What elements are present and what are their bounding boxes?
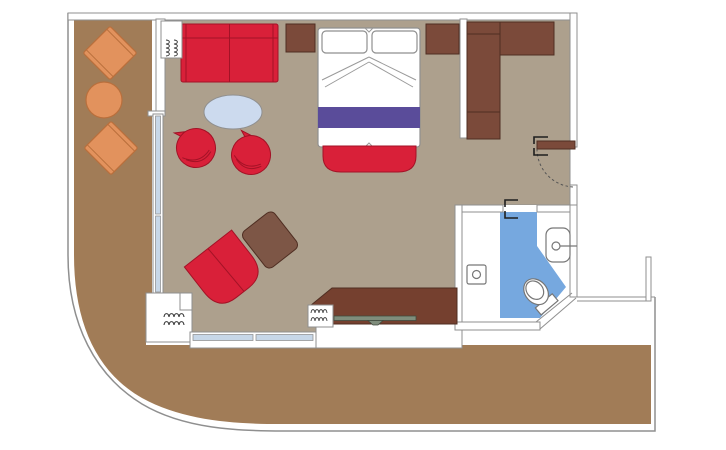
pillow-right [372,31,417,53]
pillow-left [322,31,367,53]
shower-drain-hole [473,271,481,279]
bottom-window-pane-1 [193,335,253,341]
double-bed [318,28,420,172]
bathroom-bottom-wall [455,322,540,330]
bathroom [455,200,577,330]
red-sofa [181,24,278,82]
right-wall-upper [570,13,577,147]
left-window-pane-1 [156,116,161,214]
left-window-pane-2 [156,216,161,292]
foot-of-bed-bench [323,146,416,172]
right-wall-below-door [570,185,577,207]
bathroom-right-wall [570,205,577,297]
floor-plan-page: { "plan": { "kind": "cruise-stateroom-fl… [0,0,726,450]
top-wall [68,13,577,20]
stateroom-floor-plan [0,0,726,450]
nightstand-left [286,24,315,52]
curtain-box-desk [308,305,333,327]
curtain-box-top-left [161,21,182,58]
entry-door-leaf [537,141,575,149]
oval-coffee-table [204,95,262,129]
alcove-wall-chunk [146,293,192,342]
tv [334,316,416,321]
neighbor-wall-stub [646,257,651,301]
bed-runner [318,107,420,128]
bottom-wall-right [316,324,462,348]
nightstand-right [426,24,459,54]
room-corridor-divider-wall [460,19,467,138]
bottom-window-pane-2 [256,335,313,341]
balcony-round-table [86,82,122,118]
